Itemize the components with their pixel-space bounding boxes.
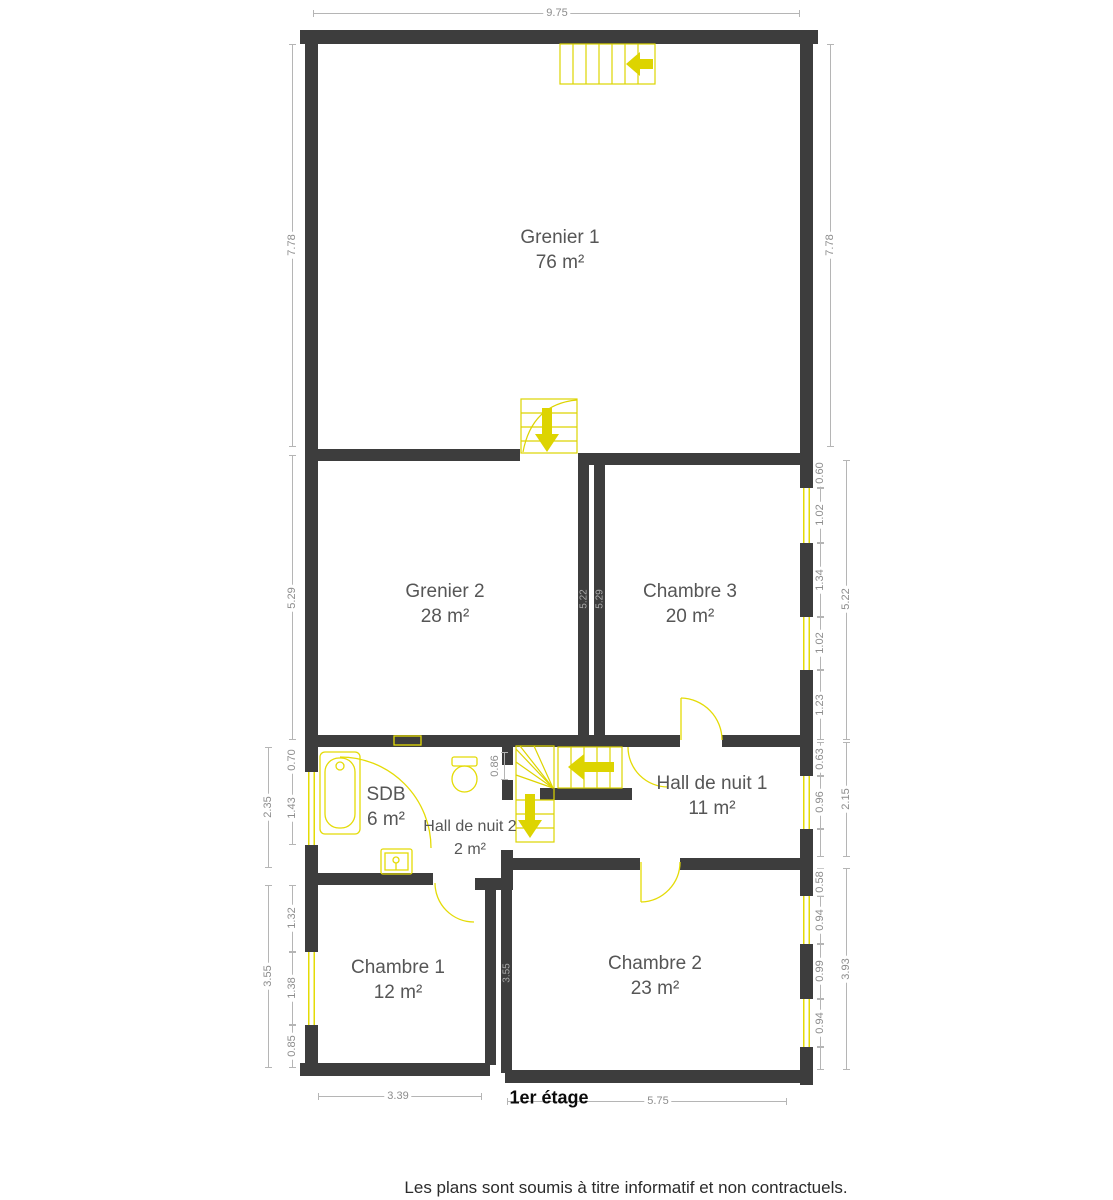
dimension-label: 5.75 — [644, 1095, 671, 1107]
room-label-chambre1: Chambre 1 12 m² — [351, 955, 445, 1005]
room-label-hall2: Hall de nuit 2 2 m² — [423, 815, 516, 861]
stairs-direction-arrow — [535, 408, 559, 452]
door-chambre3 — [681, 698, 722, 740]
dimension-label: 0.94 — [814, 1009, 826, 1036]
dimension-label: 0.63 — [814, 745, 826, 772]
stairs-direction-arrow — [568, 754, 614, 780]
dimension-label: 0.86 — [489, 752, 501, 779]
room-label-chambre3: Chambre 3 20 m² — [643, 579, 737, 629]
staircase-grenier1-mid — [521, 399, 577, 453]
dimension-label: 1.02 — [814, 629, 826, 656]
room-name: SDB — [366, 782, 405, 807]
wall-segment — [305, 44, 318, 747]
window — [305, 772, 318, 845]
dimension-label: 0.96 — [814, 788, 826, 815]
wall-dimension-label: 5.22 — [579, 589, 590, 608]
room-label-chambre2: Chambre 2 23 m² — [608, 951, 702, 1001]
staircase-grenier1-top — [560, 44, 655, 84]
dimension-label: 2.15 — [840, 785, 852, 812]
wall-segment — [800, 742, 813, 776]
dimension-label: 3.93 — [840, 955, 852, 982]
room-area: 11 m² — [657, 796, 768, 821]
wall-segment — [722, 735, 800, 747]
wall-segment — [800, 670, 813, 742]
window — [800, 896, 813, 944]
room-name: Grenier 1 — [520, 225, 599, 250]
wall-segment — [300, 1063, 490, 1076]
room-label-grenier2: Grenier 2 28 m² — [405, 579, 484, 629]
dimension-label: 0.85 — [286, 1032, 298, 1059]
room-label-grenier1: Grenier 1 76 m² — [520, 225, 599, 275]
room-area: 20 m² — [643, 604, 737, 629]
dimension-label: 0.60 — [814, 459, 826, 486]
room-area: 6 m² — [366, 807, 405, 832]
staircase-hall — [558, 747, 622, 788]
window — [800, 617, 813, 670]
sink — [381, 849, 412, 874]
dimension-label: 0.94 — [814, 906, 826, 933]
room-name: Chambre 3 — [643, 579, 737, 604]
wall-segment — [800, 944, 813, 999]
wall-segment — [305, 449, 520, 461]
dimension-label: 0.58 — [814, 868, 826, 895]
dimension-label: 1.23 — [814, 691, 826, 718]
dimension-label: 1.02 — [814, 501, 826, 528]
window — [800, 999, 813, 1047]
room-name: Chambre 2 — [608, 951, 702, 976]
floor-plan: 9.75 7.78 7.78 5.29 5.22 0.60 1.02 1.34 … — [0, 0, 1113, 1200]
room-area: 28 m² — [405, 604, 484, 629]
dimension-label: 1.43 — [286, 794, 298, 821]
dimension-label: 5.29 — [286, 584, 298, 611]
window — [800, 488, 813, 543]
wall-segment — [512, 735, 680, 747]
dimension-label: 3.39 — [384, 1090, 411, 1102]
door-chambre2 — [641, 862, 680, 902]
dimension-line — [820, 829, 821, 857]
toilet — [452, 757, 477, 792]
dimension-label: 7.78 — [286, 231, 298, 258]
wall-segment — [800, 829, 813, 868]
wall-segment — [800, 44, 813, 455]
floor-title: 1er étage — [509, 1088, 588, 1109]
room-label-sdb: SDB 6 m² — [366, 782, 405, 832]
disclaimer-text: Les plans sont soumis à titre informatif… — [404, 1178, 847, 1198]
room-label-hall1: Hall de nuit 1 11 m² — [657, 771, 768, 821]
room-area: 12 m² — [351, 980, 445, 1005]
window — [800, 776, 813, 829]
room-name: Hall de nuit 1 — [657, 771, 768, 796]
wall-segment — [540, 788, 632, 800]
wall-segment — [485, 885, 496, 1065]
dimension-label: 7.78 — [824, 231, 836, 258]
wall-segment — [505, 1070, 812, 1083]
wall-segment — [300, 30, 818, 44]
dimension-label: 0.99 — [814, 957, 826, 984]
window — [305, 952, 318, 1025]
wall-segment — [680, 858, 800, 870]
wall-segment — [512, 858, 640, 870]
wall-segment — [800, 543, 813, 617]
room-area: 76 m² — [520, 250, 599, 275]
dimension-label: 1.34 — [814, 566, 826, 593]
wall-segment — [318, 735, 512, 747]
stairs-direction-arrow — [518, 794, 542, 838]
dimension-label: 0.70 — [286, 746, 298, 773]
wall-segment — [502, 780, 513, 800]
dimension-label: 2.35 — [262, 793, 274, 820]
door-chambre1 — [435, 883, 474, 922]
room-area: 23 m² — [608, 976, 702, 1001]
wall-segment — [800, 868, 813, 896]
stairs-direction-arrow — [626, 52, 653, 76]
dimension-label: 9.75 — [543, 7, 570, 19]
dimension-line — [504, 752, 505, 780]
room-area: 2 m² — [423, 838, 516, 861]
wall-segment — [305, 747, 318, 772]
wall-dimension-label: 5.29 — [595, 589, 606, 608]
plan-graphics — [0, 0, 1113, 1200]
wall-dimension-label: 3.55 — [502, 963, 513, 982]
room-name: Chambre 1 — [351, 955, 445, 980]
dimension-label: 1.38 — [286, 974, 298, 1001]
room-name: Grenier 2 — [405, 579, 484, 604]
dimension-label: 1.32 — [286, 904, 298, 931]
wall-segment — [305, 873, 433, 885]
dimension-label: 5.22 — [840, 585, 852, 612]
bathtub — [320, 752, 360, 834]
room-name: Hall de nuit 2 — [423, 815, 516, 838]
dimension-line — [820, 1047, 821, 1070]
wall-segment — [578, 453, 800, 465]
dimension-label: 3.55 — [262, 962, 274, 989]
wall-segment — [800, 455, 813, 488]
wall-segment — [305, 885, 318, 952]
